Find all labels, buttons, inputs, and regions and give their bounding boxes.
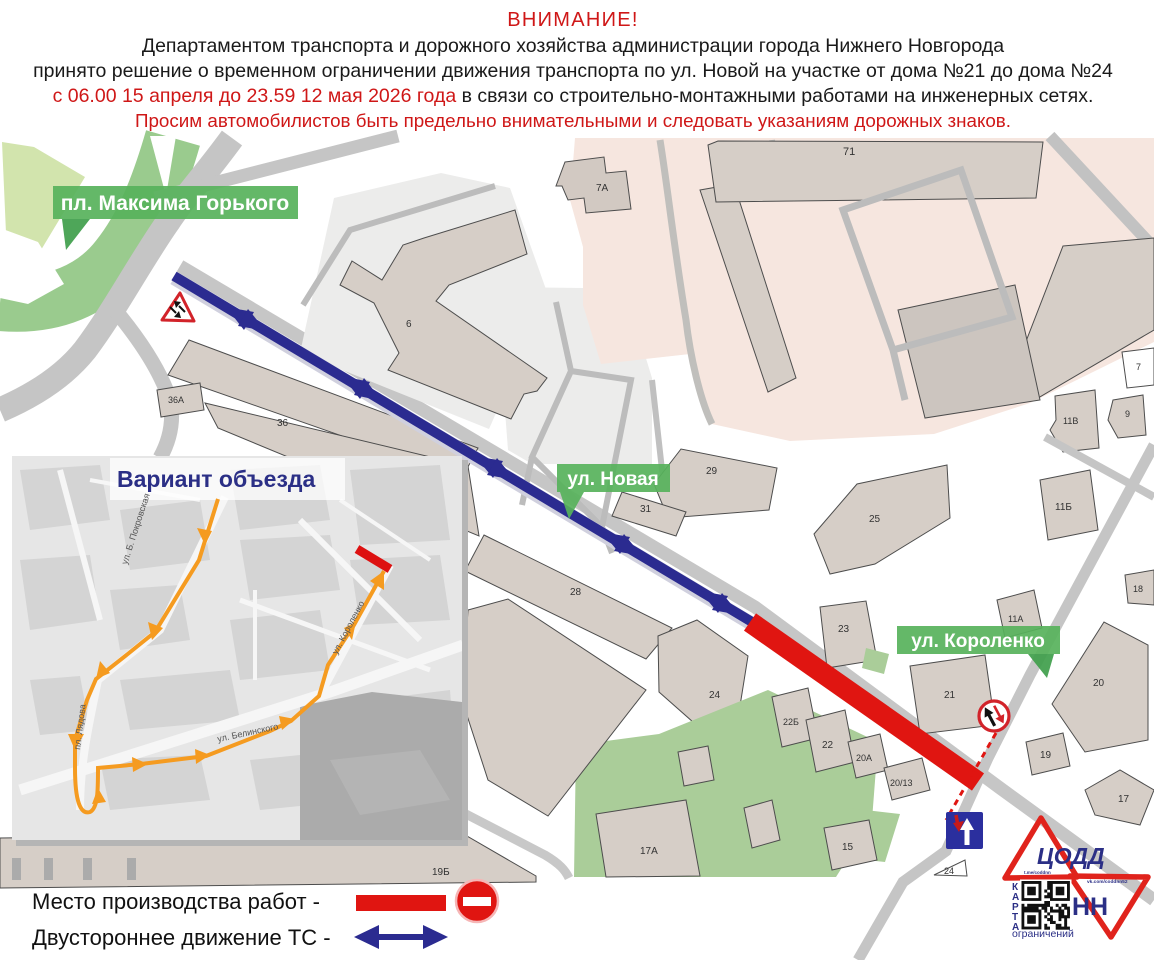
svg-text:ул. Новая: ул. Новая <box>567 469 658 490</box>
svg-text:ограничений: ограничений <box>1012 928 1074 940</box>
svg-text:7A: 7A <box>596 183 609 194</box>
svg-text:31: 31 <box>640 504 652 515</box>
svg-text:71: 71 <box>843 146 855 158</box>
svg-text:20A: 20A <box>856 753 872 763</box>
svg-text:t.me/coddnn: t.me/coddnn <box>1024 870 1051 875</box>
svg-text:24: 24 <box>944 866 954 876</box>
svg-text:принято решение о временном ог: принято решение о временном ограничении … <box>33 60 1113 82</box>
svg-text:20/13: 20/13 <box>890 778 913 788</box>
svg-text:22Б: 22Б <box>783 717 799 727</box>
svg-text:36: 36 <box>277 418 289 429</box>
svg-text:19: 19 <box>1040 750 1052 761</box>
svg-text:18: 18 <box>1133 584 1143 594</box>
svg-text:7: 7 <box>1136 362 1141 372</box>
svg-text:Место производства работ -: Место производства работ - <box>32 889 320 914</box>
svg-text:11B: 11B <box>1063 416 1078 426</box>
svg-text:11A: 11A <box>1008 614 1023 624</box>
svg-text:23: 23 <box>838 624 850 635</box>
svg-text:22: 22 <box>822 740 834 751</box>
svg-text:Просим автомобилистов быть пре: Просим автомобилистов быть предельно вни… <box>135 110 1011 131</box>
svg-text:Двустороннее движение ТС -: Двустороннее движение ТС - <box>32 925 331 950</box>
svg-text:20: 20 <box>1093 678 1105 689</box>
svg-text:ул. Короленко: ул. Короленко <box>911 631 1045 652</box>
svg-text:с 06.00 15 апреля до 23.59 12: с 06.00 15 апреля до 23.59 12 мая 2026 г… <box>53 85 1094 107</box>
svg-text:НН: НН <box>1072 893 1108 921</box>
svg-text:17: 17 <box>1118 794 1130 805</box>
svg-text:15: 15 <box>842 842 854 853</box>
svg-text:25: 25 <box>869 514 881 525</box>
svg-text:28: 28 <box>570 587 582 598</box>
svg-text:11Б: 11Б <box>1055 502 1072 513</box>
svg-text:29: 29 <box>706 466 718 477</box>
svg-text:17A: 17A <box>640 846 658 857</box>
svg-text:6: 6 <box>406 319 412 330</box>
svg-text:9: 9 <box>1125 409 1130 419</box>
svg-text:24: 24 <box>709 690 721 701</box>
svg-text:36A: 36A <box>168 395 184 405</box>
svg-text:пл. Максима Горького: пл. Максима Горького <box>61 192 290 215</box>
svg-text:ЦОДД: ЦОДД <box>1037 843 1105 869</box>
svg-text:Департаментом транспорта и дор: Департаментом транспорта и дорожного хоз… <box>142 35 1004 57</box>
svg-text:ВНИМАНИЕ!: ВНИМАНИЕ! <box>507 9 639 31</box>
svg-text:21: 21 <box>944 690 956 701</box>
svg-text:19Б: 19Б <box>432 867 450 878</box>
svg-text:Вариант объезда: Вариант объезда <box>117 466 315 492</box>
svg-text:vk.com/coddnn52: vk.com/coddnn52 <box>1087 879 1128 885</box>
